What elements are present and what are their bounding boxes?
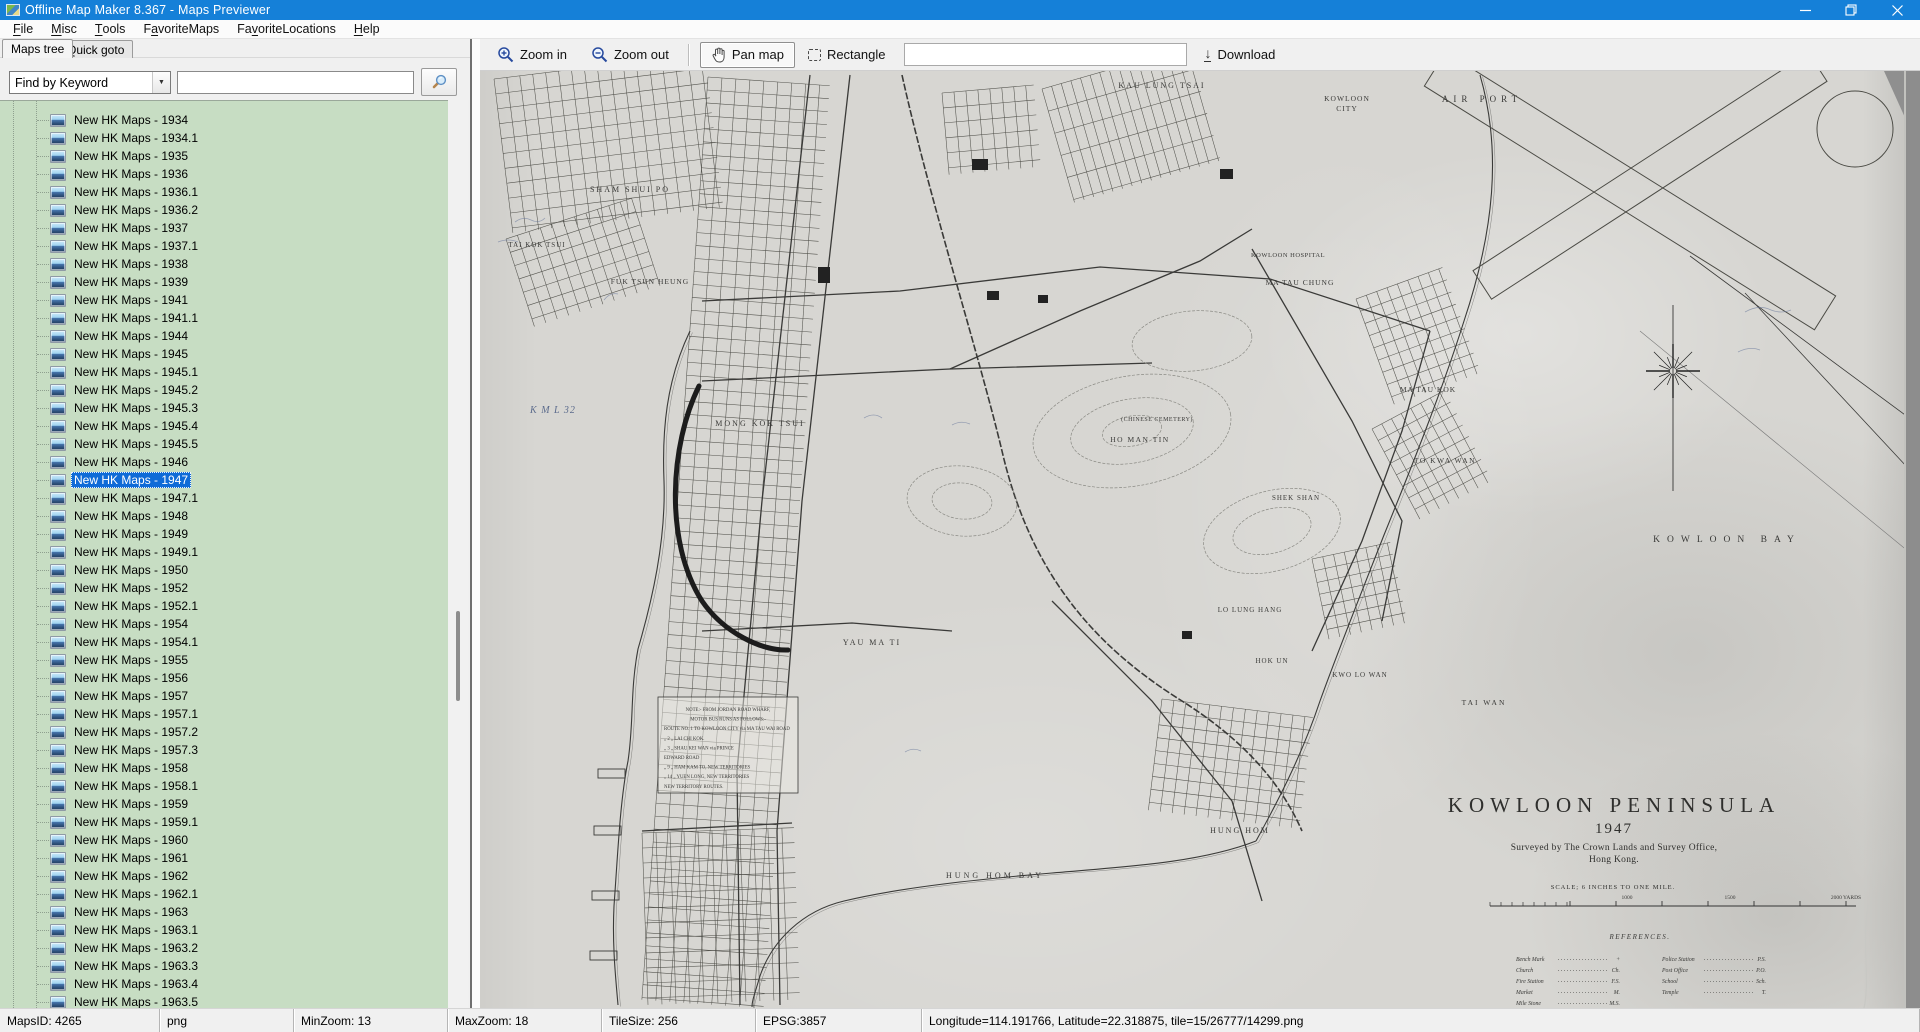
restore-icon	[1845, 4, 1857, 16]
map-file-icon	[50, 654, 66, 667]
tree-item[interactable]: New HK Maps - 1962	[0, 867, 448, 885]
status-panel-5: EPSG:3857	[756, 1009, 922, 1032]
find-mode-dropdown[interactable]: Find by Keyword ▼	[9, 71, 171, 94]
tree-item-label: New HK Maps - 1936.2	[71, 202, 201, 218]
map-label: HUNG HOM	[1210, 826, 1270, 835]
tree-item[interactable]: New HK Maps - 1948	[0, 507, 448, 525]
tree-scrollbar[interactable]	[448, 100, 468, 1008]
map-file-icon	[50, 276, 66, 289]
tree-item[interactable]: New HK Maps - 1963.2	[0, 939, 448, 957]
menu-item-tools[interactable]: Tools	[86, 20, 135, 39]
tree-item[interactable]: New HK Maps - 1960	[0, 831, 448, 849]
tree-item-label: New HK Maps - 1948	[71, 508, 191, 524]
map-label: TO KWA WAN	[1414, 456, 1476, 465]
tree-item-label: New HK Maps - 1945.5	[71, 436, 201, 452]
chevron-down-icon: ▼	[152, 72, 170, 93]
menu-item-favoritemaps[interactable]: FavoriteMaps	[134, 20, 228, 39]
tree-item-label: New HK Maps - 1959.1	[71, 814, 201, 830]
tree-item-label: New HK Maps - 1957.2	[71, 724, 201, 740]
reference-abbr: T.	[1762, 990, 1766, 996]
tree-item[interactable]: New HK Maps - 1945.5	[0, 435, 448, 453]
tree-item-label: New HK Maps - 1956	[71, 670, 191, 686]
map-file-icon	[50, 294, 66, 307]
sidebar: Maps tree Quick goto Find by Keyword ▼ N…	[0, 39, 472, 1008]
tree-item-label: New HK Maps - 1957.3	[71, 742, 201, 758]
tree-item-label: New HK Maps - 1945	[71, 346, 191, 362]
tree-item-label: New HK Maps - 1963.4	[71, 976, 201, 992]
tree-item[interactable]: New HK Maps - 1963.1	[0, 921, 448, 939]
status-panel-4: TileSize: 256	[602, 1009, 756, 1032]
map-file-icon	[50, 726, 66, 739]
map-label: YAU MA TI	[843, 638, 901, 647]
map-file-icon	[50, 870, 66, 883]
references-heading: REFERENCES.	[1608, 933, 1670, 941]
tree-item[interactable]: New HK Maps - 1963	[0, 903, 448, 921]
note-box-line: „ 3 „ SHAU KEI WAN via PRINCE	[664, 746, 734, 751]
search-input[interactable]	[177, 71, 414, 94]
map-file-icon	[50, 204, 66, 217]
status-panel-3: MaxZoom: 18	[448, 1009, 602, 1032]
tree-item-label: New HK Maps - 1937.1	[71, 238, 201, 254]
note-box-line: ROUTE NO. 1 TO KOWLOON CITY via MA TAU W…	[664, 727, 790, 732]
zoom-out-button[interactable]: Zoom out	[580, 42, 680, 68]
map-file-icon	[50, 816, 66, 829]
tree-item[interactable]: New HK Maps - 1949	[0, 525, 448, 543]
tree-item[interactable]: New HK Maps - 1938	[0, 255, 448, 273]
tree-item[interactable]: New HK Maps - 1936	[0, 165, 448, 183]
rectangle-icon	[808, 49, 821, 61]
reference-item: Temple	[1662, 990, 1679, 996]
tree-item-label: New HK Maps - 1938	[71, 256, 191, 272]
tree-item[interactable]: New HK Maps - 1957	[0, 687, 448, 705]
map-label: MA TAU CHUNG	[1266, 278, 1335, 287]
note-box-line: „ 2 „ LAI CHI KOK.	[664, 737, 705, 742]
map-file-icon	[50, 258, 66, 271]
map-toolbar: Zoom in Zoom out Pan map Rectangle ↓ Dow…	[480, 39, 1920, 71]
map-file-icon	[50, 492, 66, 505]
tree-item-label: New HK Maps - 1936.1	[71, 184, 201, 200]
reference-abbr: P.S.	[1756, 957, 1766, 963]
reference-item: Church	[1516, 968, 1533, 974]
map-label: SHEK SHAN	[1272, 494, 1320, 502]
map-scale-mark: 1500	[1725, 895, 1736, 901]
menu-item-favoritelocations[interactable]: FavoriteLocations	[228, 20, 345, 39]
tree-item[interactable]: New HK Maps - 1946	[0, 453, 448, 471]
map-title-block: KOWLOON PENINSULA	[1448, 793, 1780, 817]
map-file-icon	[50, 690, 66, 703]
reference-abbr: Ch.	[1612, 968, 1620, 974]
tree-item-label: New HK Maps - 1957	[71, 688, 191, 704]
zoom-in-button[interactable]: Zoom in	[486, 42, 578, 68]
map-drawing: KAU LUNG TSAIKOWLOONCITYAIR PORTSHAM SHU…	[480, 71, 1920, 1008]
map-label: HOK UN	[1255, 657, 1288, 665]
map-label: AIR PORT	[1442, 94, 1522, 104]
map-file-icon	[50, 618, 66, 631]
tree-item[interactable]: New HK Maps - 1949.1	[0, 543, 448, 561]
tree-item-label: New HK Maps - 1958	[71, 760, 191, 776]
tree-item[interactable]: New HK Maps - 1945.1	[0, 363, 448, 381]
tree-item-label: New HK Maps - 1936	[71, 166, 191, 182]
menu-item-misc[interactable]: Misc	[42, 20, 86, 39]
tree-item[interactable]: New HK Maps - 1941	[0, 291, 448, 309]
panel-gap	[472, 39, 480, 1008]
tree-item-label: New HK Maps - 1949	[71, 526, 191, 542]
close-icon	[1892, 5, 1903, 16]
tree-item-label: New HK Maps - 1947	[71, 472, 191, 488]
note-box-line: „ 14 „ YUEN LONG, NEW TERRITORIES	[664, 775, 750, 780]
tree-item-label: New HK Maps - 1962	[71, 868, 191, 884]
map-label: (CHINESE CEMETERY)	[1121, 416, 1193, 423]
reference-abbr: Sch.	[1756, 979, 1766, 985]
tree-item-label: New HK Maps - 1961	[71, 850, 191, 866]
map-file-icon	[50, 438, 66, 451]
map-file-icon	[50, 798, 66, 811]
tree-item[interactable]: New HK Maps - 1936.2	[0, 201, 448, 219]
tree-item[interactable]: New HK Maps - 1937	[0, 219, 448, 237]
map-file-icon	[50, 762, 66, 775]
status-panel-1: png	[160, 1009, 294, 1032]
map-file-icon	[50, 960, 66, 973]
map-label: SHAM SHUI PO	[590, 185, 670, 194]
map-label: HO MAN TIN	[1110, 435, 1169, 444]
tree-item[interactable]: New HK Maps - 1939	[0, 273, 448, 291]
map-title-block: Hong Kong.	[1589, 855, 1639, 865]
tree-item-label: New HK Maps - 1941.1	[71, 310, 201, 326]
toolbar-input[interactable]	[904, 43, 1187, 66]
status-panel-2: MinZoom: 13	[294, 1009, 448, 1032]
tree-item[interactable]: New HK Maps - 1945.4	[0, 417, 448, 435]
map-canvas[interactable]: KAU LUNG TSAIKOWLOONCITYAIR PORTSHAM SHU…	[480, 71, 1920, 1008]
tree-item-label: New HK Maps - 1939	[71, 274, 191, 290]
rectangle-label: Rectangle	[827, 47, 886, 62]
toolbar-separator	[688, 44, 690, 66]
tree-item-label: New HK Maps - 1937	[71, 220, 191, 236]
map-file-icon	[50, 402, 66, 415]
note-box-line: MOTOR BUS RUNS AS FOLLOWS:-	[690, 718, 766, 723]
map-file-icon	[50, 978, 66, 991]
tree-item[interactable]: New HK Maps - 1950	[0, 561, 448, 579]
map-file-icon	[50, 150, 66, 163]
tree-item-label: New HK Maps - 1959	[71, 796, 191, 812]
map-file-icon	[50, 744, 66, 757]
reference-abbr: P.O.	[1755, 968, 1766, 974]
tree-item-label: New HK Maps - 1934	[71, 112, 191, 128]
tree-item[interactable]: New HK Maps - 1945.3	[0, 399, 448, 417]
tab-maps-tree-label: Maps tree	[11, 42, 64, 56]
map-label: LO LUNG HANG	[1218, 606, 1283, 614]
tree-item[interactable]: New HK Maps - 1937.1	[0, 237, 448, 255]
tree-item-label: New HK Maps - 1945.4	[71, 418, 201, 434]
map-file-icon	[50, 996, 66, 1009]
map-file-icon	[50, 942, 66, 955]
maps-tree-list[interactable]: New HK Maps - 1934New HK Maps - 1934.1Ne…	[0, 100, 448, 1008]
tree-item[interactable]: New HK Maps - 1954	[0, 615, 448, 633]
map-file-icon	[50, 906, 66, 919]
map-title-block: 1947	[1595, 821, 1633, 837]
tree-item[interactable]: New HK Maps - 1945.2	[0, 381, 448, 399]
tree-item-label: New HK Maps - 1945.3	[71, 400, 201, 416]
map-file-icon	[50, 132, 66, 145]
tree-item[interactable]: New HK Maps - 1958	[0, 759, 448, 777]
status-panel-6: Longitude=114.191766, Latitude=22.318875…	[922, 1009, 1920, 1032]
tree-item[interactable]: New HK Maps - 1936.1	[0, 183, 448, 201]
tree-item-label: New HK Maps - 1935	[71, 148, 191, 164]
note-box-line: NEW TERRITORY ROUTES.	[664, 785, 723, 790]
sidebar-tabs: Maps tree Quick goto	[0, 39, 472, 58]
map-label: KWO LO WAN	[1332, 671, 1387, 679]
note-box-line: EDWARD ROAD	[664, 756, 700, 761]
map-label: HUNG HOM BAY	[946, 871, 1044, 880]
tree-item[interactable]: New HK Maps - 1963.4	[0, 975, 448, 993]
tree-item[interactable]: New HK Maps - 1963.5	[0, 993, 448, 1008]
reference-item: Post Office	[1661, 967, 1688, 974]
map-file-icon	[50, 888, 66, 901]
reference-abbr: M.S.	[1608, 1001, 1620, 1007]
tree-item-label: New HK Maps - 1952.1	[71, 598, 201, 614]
pan-map-label: Pan map	[732, 47, 784, 62]
map-file-icon	[50, 510, 66, 523]
app-icon	[6, 4, 20, 16]
pan-hand-icon	[711, 47, 726, 63]
map-label: K M L 32	[529, 405, 576, 416]
map-file-icon	[50, 708, 66, 721]
menu-item-file[interactable]: File	[4, 20, 42, 39]
pan-map-button[interactable]: Pan map	[700, 42, 795, 68]
note-box-line: NOTE:- FROM JORDAN ROAD WHARF,	[686, 708, 771, 713]
tree-item-label: New HK Maps - 1960	[71, 832, 191, 848]
tree-item[interactable]: New HK Maps - 1934	[0, 111, 448, 129]
map-file-icon	[50, 474, 66, 487]
tree-item[interactable]: New HK Maps - 1958.1	[0, 777, 448, 795]
map-file-icon	[50, 240, 66, 253]
download-label: Download	[1217, 47, 1275, 62]
download-button[interactable]: ↓ Download	[1193, 42, 1286, 68]
close-button[interactable]	[1874, 0, 1920, 20]
map-file-icon	[50, 168, 66, 181]
download-icon: ↓	[1204, 47, 1211, 62]
tree-item-label: New HK Maps - 1957.1	[71, 706, 201, 722]
tree-item[interactable]: New HK Maps - 1959.1	[0, 813, 448, 831]
tree-item-label: New HK Maps - 1954.1	[71, 634, 201, 650]
map-label: KAU LUNG TSAI	[1118, 81, 1205, 90]
note-box-line: „ 9 „ HAM KAM TO, NEW TERRITORIES	[664, 766, 750, 771]
title-bar[interactable]: Offline Map Maker 8.367 - Maps Previewer	[0, 0, 1920, 20]
reference-item: Police Station	[1661, 957, 1695, 963]
search-icon	[430, 73, 448, 91]
map-file-icon	[50, 582, 66, 595]
tree-item[interactable]: New HK Maps - 1952	[0, 579, 448, 597]
tree-item-label: New HK Maps - 1954	[71, 616, 191, 632]
zoom-out-label: Zoom out	[614, 47, 669, 62]
tree-item-label: New HK Maps - 1945.1	[71, 364, 201, 380]
search-button[interactable]	[421, 68, 457, 96]
tree-item-label: New HK Maps - 1941	[71, 292, 191, 308]
map-file-icon	[50, 546, 66, 559]
menu-bar: FileMiscToolsFavoriteMapsFavoriteLocatio…	[0, 20, 1920, 39]
tree-item-label: New HK Maps - 1963	[71, 904, 191, 920]
reference-item: Market	[1515, 990, 1533, 996]
map-file-icon	[50, 636, 66, 649]
tree-item[interactable]: New HK Maps - 1944	[0, 327, 448, 345]
tree-item[interactable]: New HK Maps - 1947.1	[0, 489, 448, 507]
map-file-icon	[50, 384, 66, 397]
map-title-block: Surveyed by The Crown Lands and Survey O…	[1511, 842, 1718, 853]
map-file-icon	[50, 222, 66, 235]
status-bar: MapsID: 4265pngMinZoom: 13MaxZoom: 18Til…	[0, 1008, 1920, 1032]
map-file-icon	[50, 672, 66, 685]
tree-item[interactable]: New HK Maps - 1961	[0, 849, 448, 867]
map-file-icon	[50, 348, 66, 361]
reference-abbr: M.	[1613, 990, 1620, 996]
map-file-icon	[50, 312, 66, 325]
rectangle-button[interactable]: Rectangle	[797, 42, 897, 68]
map-label: FUK TSUN HEUNG	[611, 277, 689, 286]
tree-item-label: New HK Maps - 1934.1	[71, 130, 201, 146]
map-file-icon	[50, 420, 66, 433]
map-label: TAI KOK TSUI	[508, 241, 565, 249]
map-file-icon	[50, 852, 66, 865]
reference-item: Mile Stone	[1515, 1001, 1541, 1007]
map-label: KOWLOON HOSPITAL	[1251, 252, 1325, 259]
tree-item-label: New HK Maps - 1944	[71, 328, 191, 344]
reference-abbr: F.S.	[1610, 979, 1620, 985]
map-scale-mark: 2000 YARDS	[1831, 895, 1861, 901]
minimize-button[interactable]	[1782, 0, 1828, 20]
map-file-icon	[50, 366, 66, 379]
map-label: KOWLOON BAY	[1653, 535, 1801, 545]
tree-item-label: New HK Maps - 1963.5	[71, 994, 201, 1008]
map-scale-mark: 1000	[1622, 895, 1633, 901]
tab-maps-tree[interactable]: Maps tree	[2, 39, 73, 58]
app-window: Offline Map Maker 8.367 - Maps Previewer…	[0, 0, 1920, 1032]
tree-item[interactable]: New HK Maps - 1952.1	[0, 597, 448, 615]
map-label: CITY	[1336, 104, 1358, 113]
map-label: MA TAU KOK	[1400, 385, 1456, 394]
tree-item[interactable]: New HK Maps - 1954.1	[0, 633, 448, 651]
reference-abbr: +	[1616, 957, 1620, 963]
tree-item[interactable]: New HK Maps - 1955	[0, 651, 448, 669]
tree-item-label: New HK Maps - 1963.2	[71, 940, 201, 956]
map-file-icon	[50, 924, 66, 937]
tree-item-label: New HK Maps - 1963.1	[71, 922, 201, 938]
zoom-in-icon	[497, 46, 514, 63]
tree-item[interactable]: New HK Maps - 1934.1	[0, 129, 448, 147]
tree-item[interactable]: New HK Maps - 1957.1	[0, 705, 448, 723]
map-file-icon	[50, 330, 66, 343]
map-file-icon	[50, 564, 66, 577]
tree-item[interactable]: New HK Maps - 1935	[0, 147, 448, 165]
tree-scrollbar-thumb[interactable]	[456, 611, 460, 701]
tree-item-label: New HK Maps - 1949.1	[71, 544, 201, 560]
tree-item[interactable]: New HK Maps - 1956	[0, 669, 448, 687]
map-label: TAI WAN	[1462, 698, 1507, 707]
zoom-in-label: Zoom in	[520, 47, 567, 62]
tab-quick-goto-label: Quick goto	[67, 43, 124, 57]
tree-item-label: New HK Maps - 1963.3	[71, 958, 201, 974]
tree-item[interactable]: New HK Maps - 1957.3	[0, 741, 448, 759]
map-file-icon	[50, 780, 66, 793]
zoom-out-icon	[591, 46, 608, 63]
map-file-icon	[50, 834, 66, 847]
search-row: Find by Keyword ▼	[0, 59, 472, 99]
tree-item[interactable]: New HK Maps - 1957.2	[0, 723, 448, 741]
status-panel-0: MapsID: 4265	[0, 1009, 160, 1032]
map-label: MONG KOK TSUI	[715, 419, 804, 428]
tree-item-label: New HK Maps - 1958.1	[71, 778, 201, 794]
reference-item: School	[1662, 979, 1678, 985]
reference-item: Fire Station	[1515, 979, 1544, 985]
tree-item-label: New HK Maps - 1962.1	[71, 886, 201, 902]
map-title-block: SCALE; 6 INCHES TO ONE MILE.	[1551, 884, 1676, 891]
map-file-icon	[50, 456, 66, 469]
map-file-icon	[50, 186, 66, 199]
menu-item-help[interactable]: Help	[345, 20, 389, 39]
tree-item[interactable]: New HK Maps - 1945	[0, 345, 448, 363]
tree-item-label: New HK Maps - 1952	[71, 580, 191, 596]
tree-item-label: New HK Maps - 1947.1	[71, 490, 201, 506]
tree-item-label: New HK Maps - 1946	[71, 454, 191, 470]
tree-item[interactable]: New HK Maps - 1941.1	[0, 309, 448, 327]
map-label: KOWLOON	[1324, 94, 1370, 103]
tree-item-label: New HK Maps - 1955	[71, 652, 191, 668]
map-file-icon	[50, 114, 66, 127]
tree-item[interactable]: New HK Maps - 1959	[0, 795, 448, 813]
tree-item-selected[interactable]: New HK Maps - 1947	[0, 471, 448, 489]
tree-item[interactable]: New HK Maps - 1963.3	[0, 957, 448, 975]
find-mode-value: Find by Keyword	[10, 76, 152, 90]
restore-button[interactable]	[1828, 0, 1874, 20]
map-file-icon	[50, 600, 66, 613]
tree-item-label: New HK Maps - 1950	[71, 562, 191, 578]
reference-item: Bench Mark	[1516, 957, 1545, 963]
tree-item[interactable]: New HK Maps - 1962.1	[0, 885, 448, 903]
tree-item-label: New HK Maps - 1945.2	[71, 382, 201, 398]
window-title: Offline Map Maker 8.367 - Maps Previewer	[25, 3, 270, 17]
map-file-icon	[50, 528, 66, 541]
